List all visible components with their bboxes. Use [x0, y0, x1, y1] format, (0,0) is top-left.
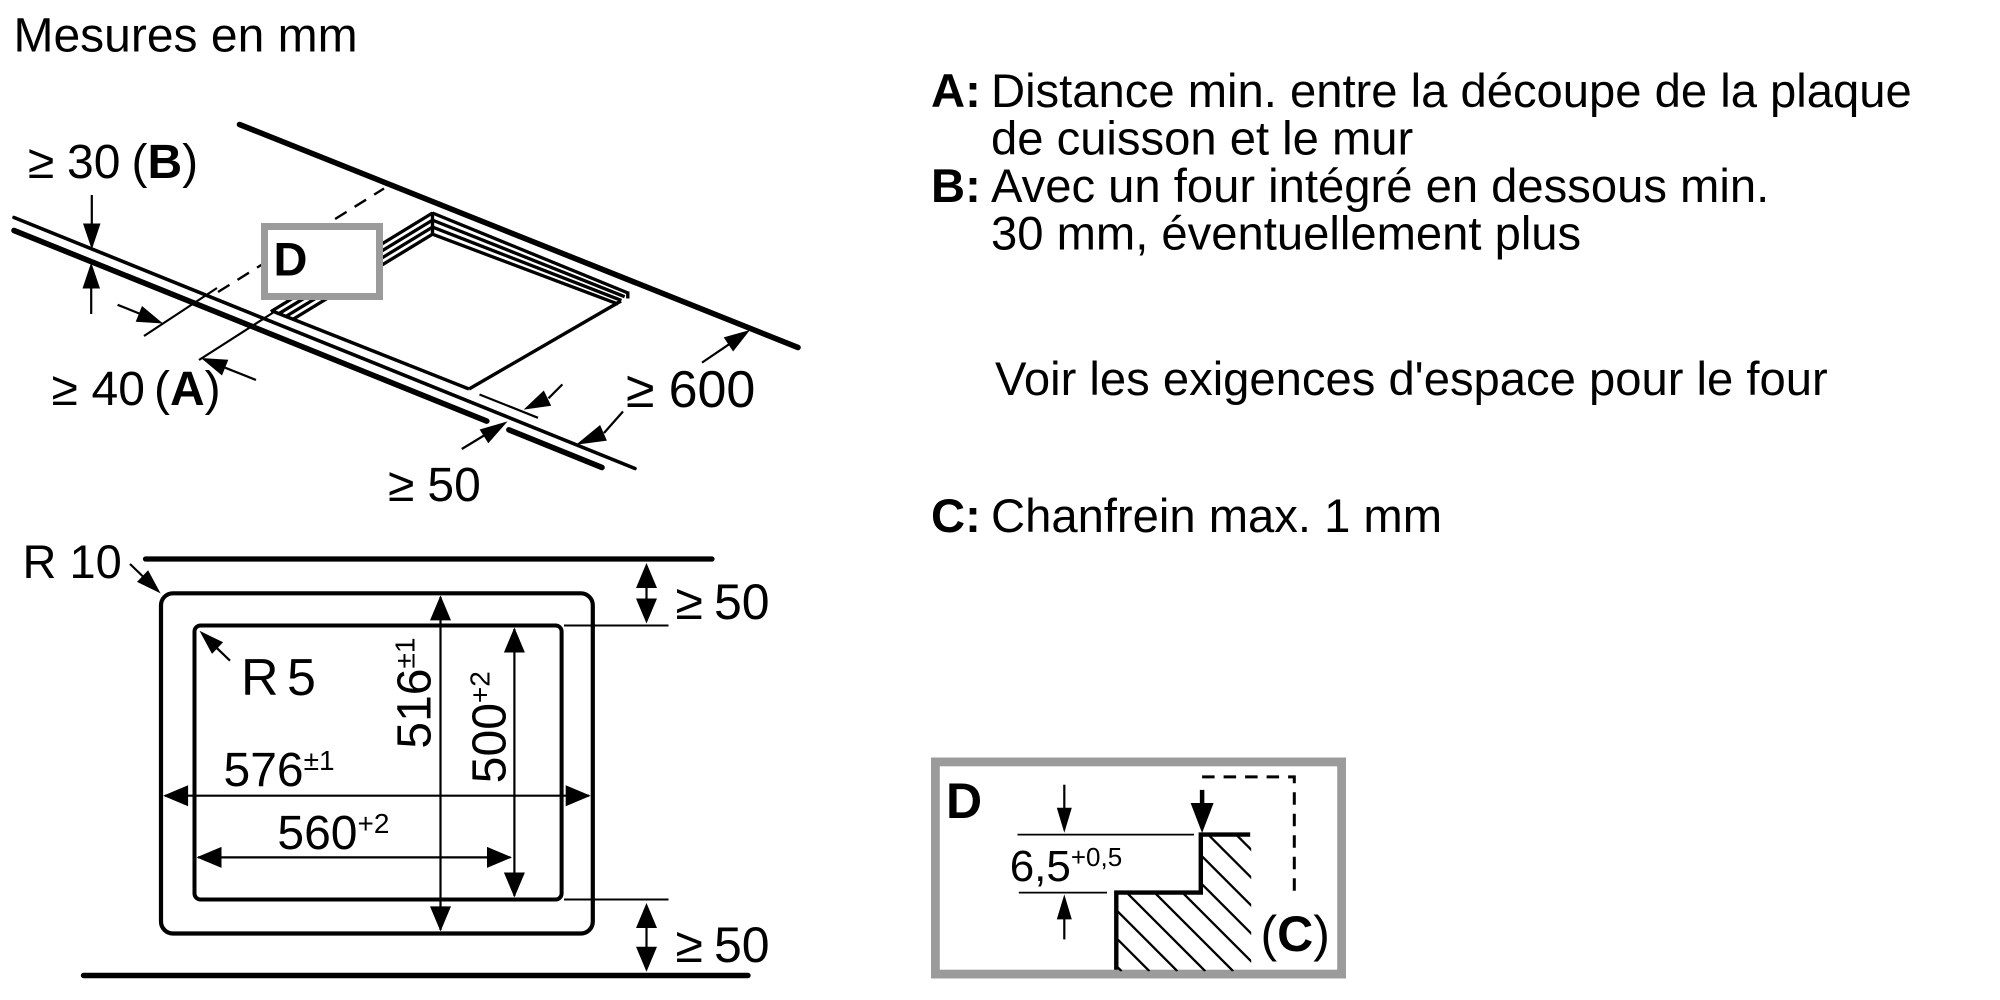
svg-text:≥40(A): ≥40(A) [52, 363, 221, 416]
svg-text:(C): (C) [1261, 906, 1330, 962]
svg-text:≥50: ≥50 [676, 917, 770, 973]
svg-text:C:Chanfrein max. 1 mm: C:Chanfrein max. 1 mm [931, 490, 1442, 543]
svg-text:≥600: ≥600 [626, 361, 755, 419]
svg-text:D: D [946, 773, 982, 829]
svg-text:B:Avec un four intégré en dess: B:Avec un four intégré en dessous min. [931, 160, 1769, 213]
svg-text:≥50: ≥50 [388, 459, 481, 512]
svg-text:≥30(B): ≥30(B) [28, 136, 198, 189]
svg-text:30 mm, éventuellement plus: 30 mm, éventuellement plus [991, 207, 1581, 260]
svg-text:R 10: R 10 [23, 535, 122, 588]
svg-text:R5: R5 [241, 649, 316, 707]
svg-text:Mesures en mm: Mesures en mm [14, 9, 358, 62]
svg-text:≥50: ≥50 [676, 574, 770, 630]
svg-text:Voir les exigences d'espace po: Voir les exigences d'espace pour le four [995, 353, 1828, 406]
svg-text:de cuisson et le mur: de cuisson et le mur [991, 112, 1413, 165]
svg-text:A:Distance min. entre la décou: A:Distance min. entre la découpe de la p… [931, 65, 1912, 118]
svg-text:D: D [274, 233, 308, 286]
